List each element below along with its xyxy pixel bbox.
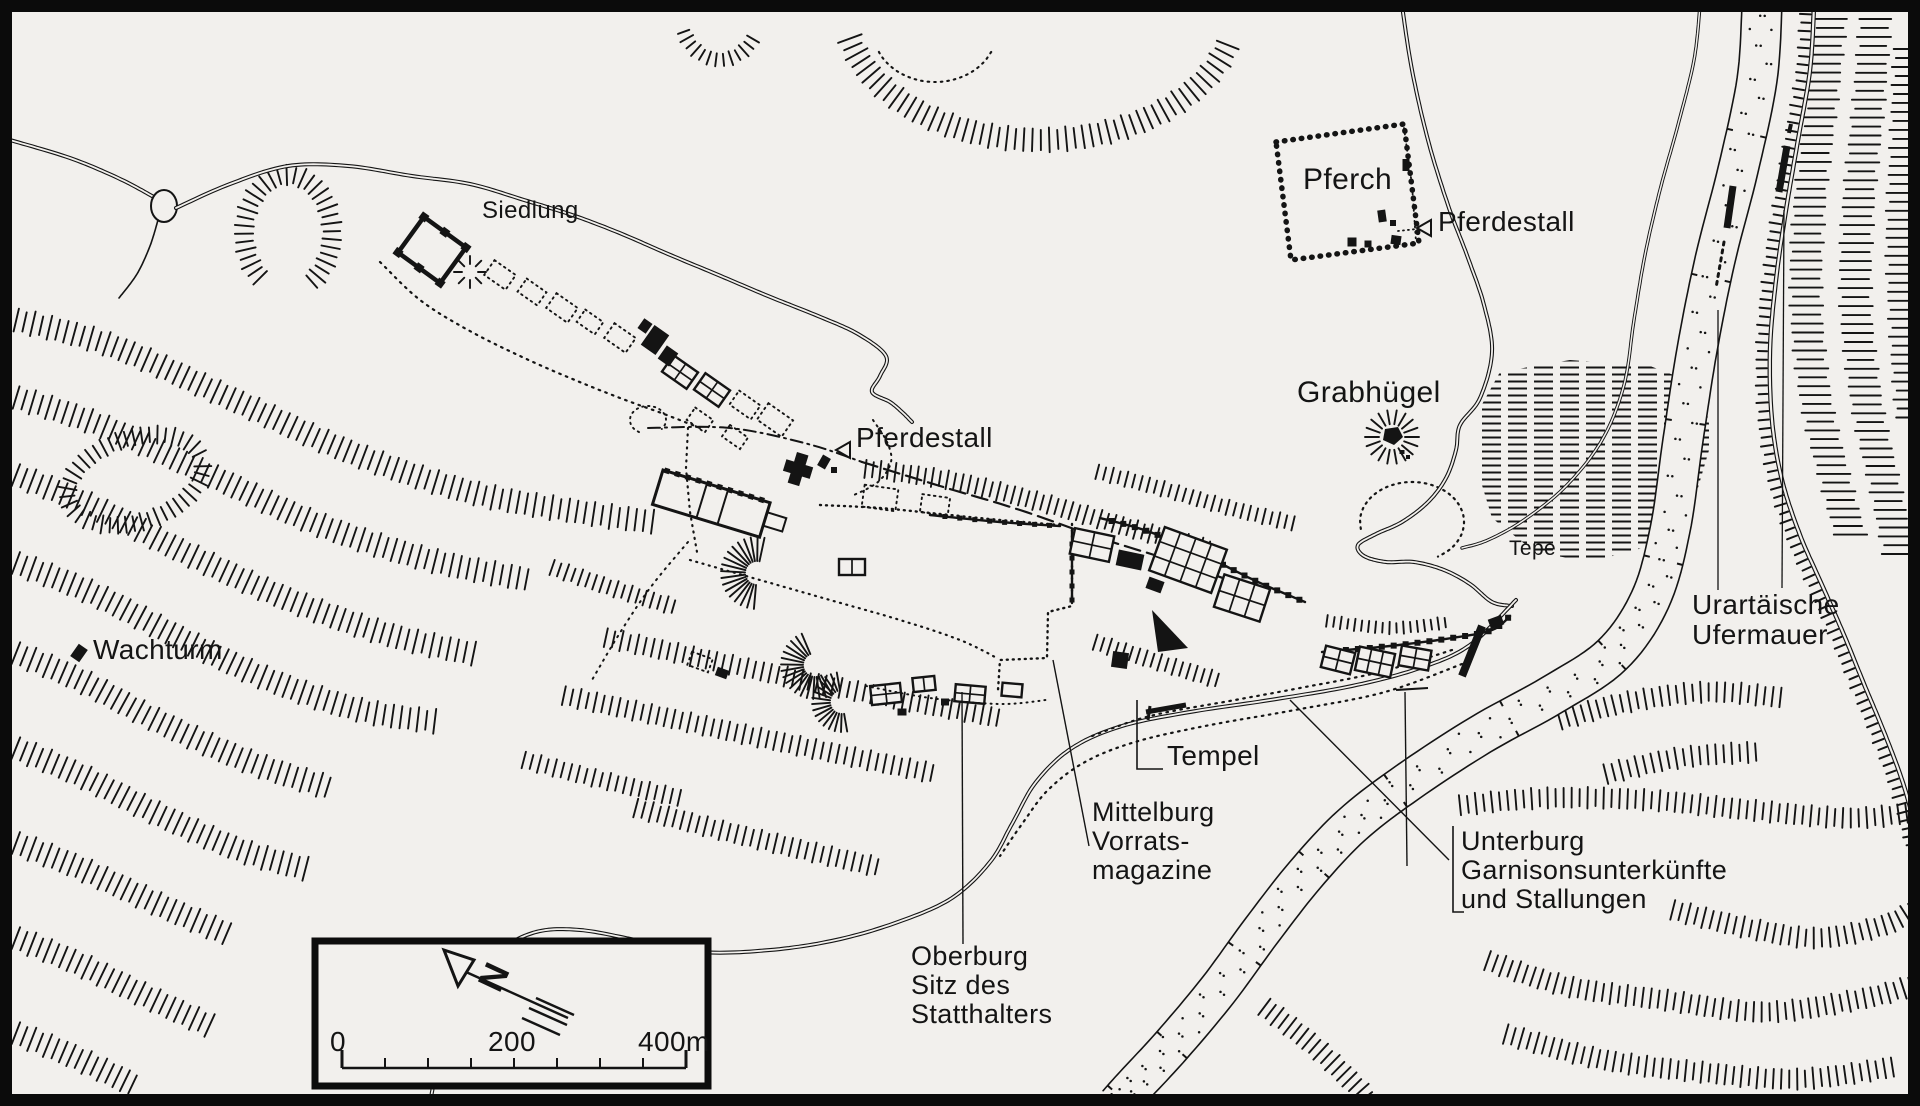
label-pferdestall-top: Pferdestall [1438, 206, 1575, 238]
label-mittelburg-line2: Vorrats- [1092, 827, 1215, 856]
label-ufermauer: Urartäische Ufermauer [1692, 590, 1840, 650]
label-mittelburg-line1: Mittelburg [1092, 798, 1215, 827]
label-oberburg-line3: Statthalters [911, 1000, 1052, 1029]
label-wachturm: Wachturm [93, 634, 223, 666]
label-siedlung: Siedlung [482, 197, 579, 225]
scale-box [315, 941, 708, 1086]
label-tempel: Tempel [1167, 740, 1260, 772]
scale-label-0: 0 [330, 1026, 346, 1058]
scale-label-200: 200 [488, 1026, 536, 1058]
label-oberburg: Oberburg Sitz des Statthalters [911, 942, 1052, 1029]
label-pferch: Pferch [1303, 163, 1392, 197]
label-oberburg-line2: Sitz des [911, 971, 1052, 1000]
label-ufermauer-line2: Ufermauer [1692, 620, 1840, 650]
label-unterburg-line2: Garnisonsunterkünfte [1461, 856, 1727, 885]
site-map: Siedlung Pferch Pferdestall Grabhügel Te… [0, 0, 1920, 1106]
label-tepe: Tepe [1509, 537, 1556, 561]
label-mittelburg: Mittelburg Vorrats- magazine [1092, 798, 1215, 885]
label-unterburg: Unterburg Garnisonsunterkünfte und Stall… [1461, 827, 1727, 914]
map-drawing [0, 0, 1920, 1106]
scale-label-400m: 400m [638, 1026, 710, 1058]
label-unterburg-line1: Unterburg [1461, 827, 1727, 856]
label-unterburg-line3: und Stallungen [1461, 885, 1727, 914]
label-grabhuegel: Grabhügel [1297, 376, 1441, 410]
label-oberburg-line1: Oberburg [911, 942, 1052, 971]
label-ufermauer-line1: Urartäische [1692, 590, 1840, 620]
label-mittelburg-line3: magazine [1092, 856, 1215, 885]
label-pferdestall-mid: Pferdestall [856, 422, 993, 454]
scale-box-frame [315, 941, 708, 1086]
